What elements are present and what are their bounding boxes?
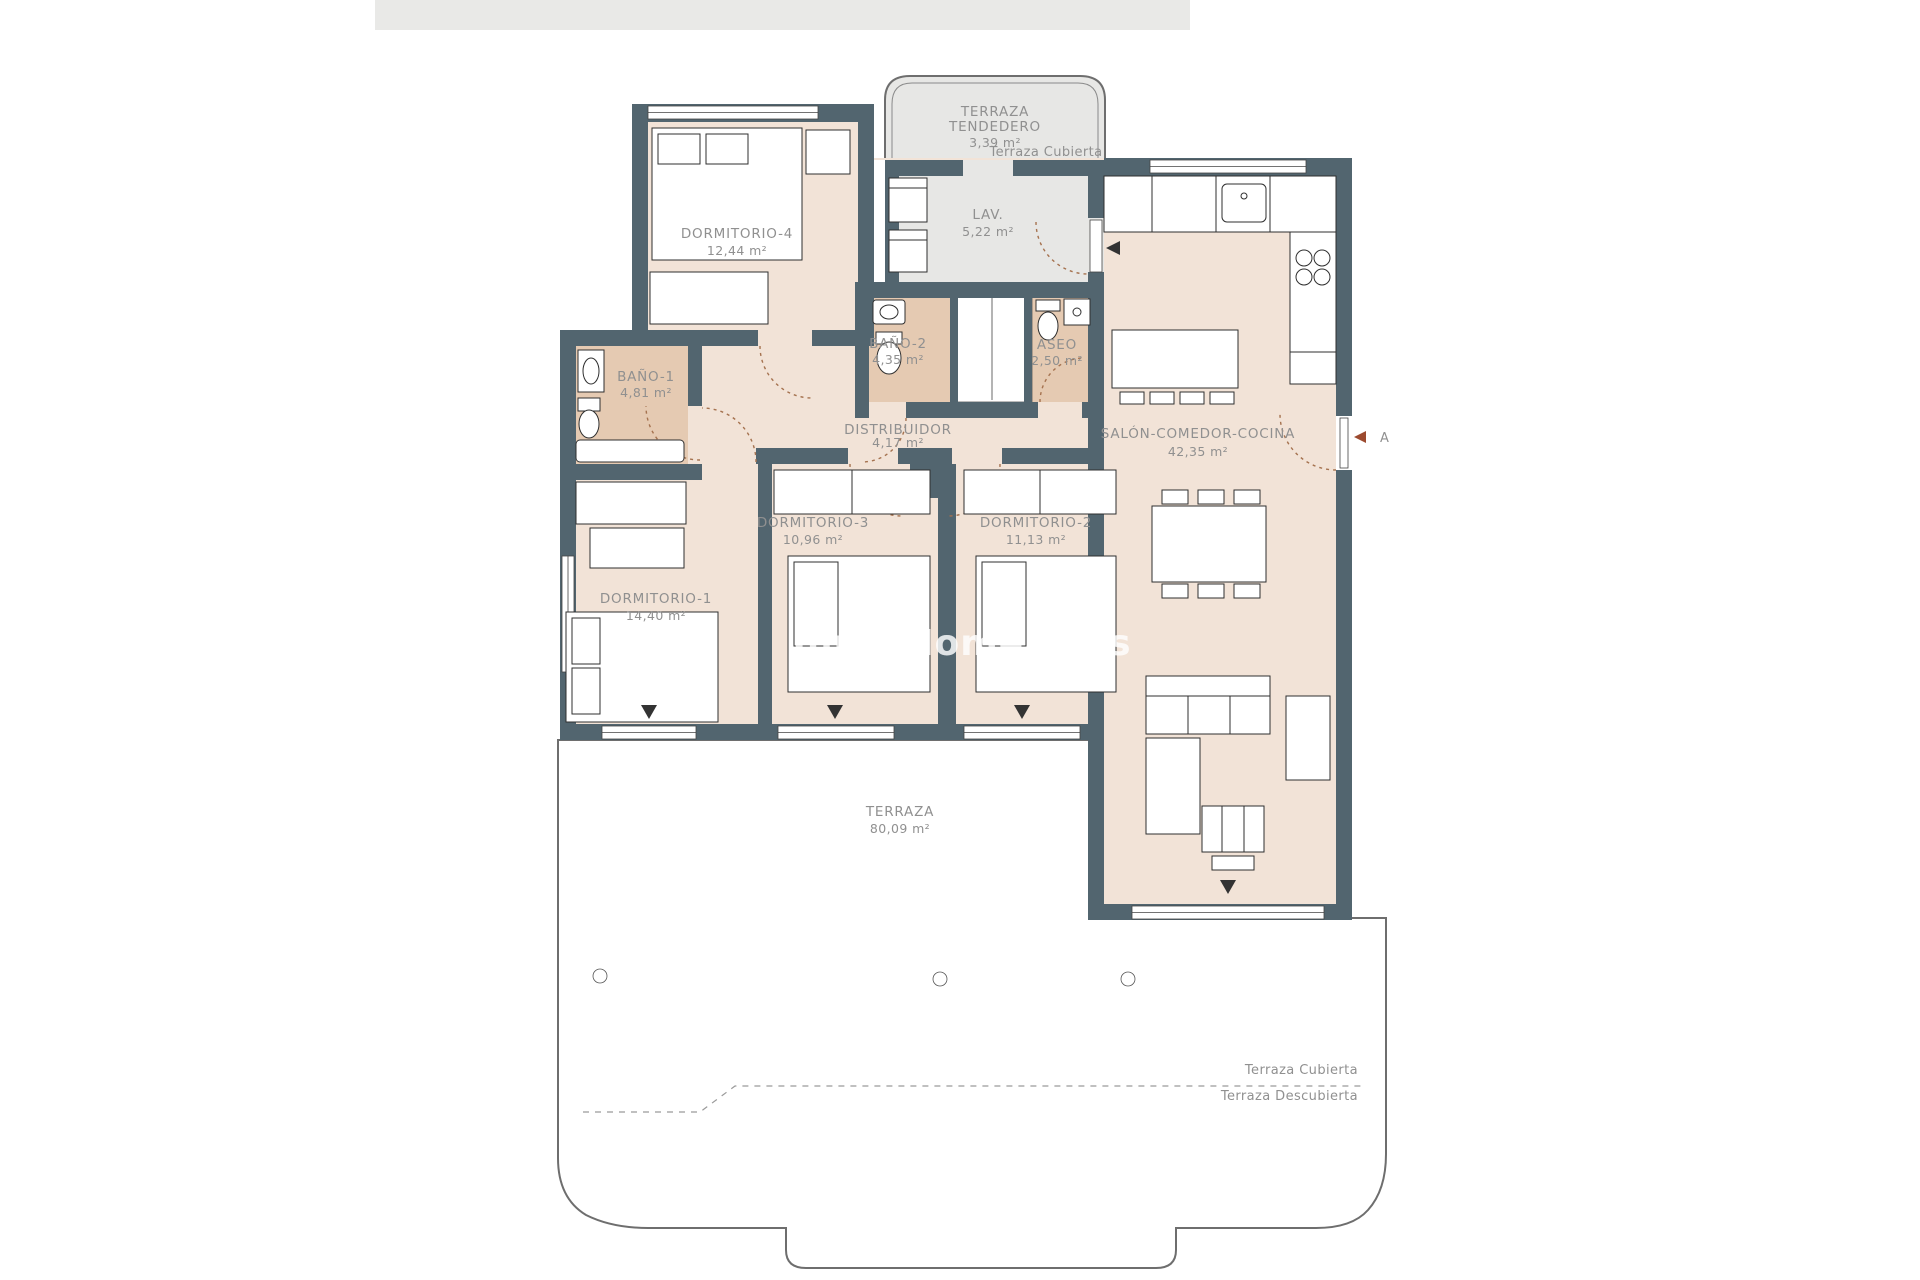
- label-lav: LAV.: [972, 207, 1003, 223]
- area-dormitorio-4: 12,44 m²: [707, 243, 767, 258]
- terrace-column: [593, 969, 607, 983]
- floor-plan-page: TERRAZA TENDEDERO 3,39 m² Terraza Cubier…: [0, 0, 1920, 1280]
- area-bano-2: 4,35 m²: [872, 352, 924, 367]
- oven-icon: [1290, 352, 1336, 384]
- label-salon: SALÓN-COMEDOR-COCINA: [1101, 424, 1295, 442]
- area-bano-1: 4,81 m²: [620, 385, 672, 400]
- dining-table-icon: [1152, 490, 1266, 598]
- kitchen-sink-icon: [1222, 184, 1266, 222]
- area-dormitorio-1: 14,40 m²: [626, 608, 686, 623]
- label-dormitorio-3: DORMITORIO-3: [757, 515, 869, 531]
- wardrobe-icon: [964, 470, 1116, 514]
- label-terraza-descubierta: Terraza Descubierta: [1220, 1089, 1358, 1104]
- label-terraza-cubierta-top: Terraza Cubierta: [988, 145, 1102, 160]
- wardrobe-icon: [590, 528, 684, 568]
- window: [778, 726, 894, 739]
- label-dormitorio-4: DORMITORIO-4: [681, 226, 793, 242]
- window: [1150, 160, 1306, 173]
- wardrobe-icon: [774, 470, 930, 514]
- entrance-marker-icon: [1354, 431, 1366, 443]
- watermark: InmoMoment.es: [792, 623, 1131, 664]
- dresser-icon: [650, 272, 768, 324]
- terrace-column: [933, 972, 947, 986]
- area-dormitorio-3: 10,96 m²: [783, 532, 843, 547]
- area-salon: 42,35 m²: [1168, 444, 1228, 459]
- wardrobe-icon: [576, 482, 686, 524]
- label-dormitorio-2: DORMITORIO-2: [980, 515, 1092, 531]
- area-dormitorio-2: 11,13 m²: [1006, 532, 1066, 547]
- sink-icon: [578, 350, 604, 392]
- washer-icon: [889, 178, 927, 222]
- window: [648, 106, 818, 119]
- area-aseo: 2,50 m²: [1031, 353, 1083, 368]
- toilet-icon: [1036, 300, 1060, 340]
- area-terraza: 80,09 m²: [870, 821, 930, 836]
- bathtub-icon: [576, 440, 684, 462]
- section-marker-a: A: [1380, 431, 1389, 446]
- toilet-icon: [578, 398, 600, 438]
- area-distribuidor: 4,17 m²: [872, 435, 924, 450]
- label-bano-2: BAÑO-2: [869, 335, 927, 352]
- label-terraza-tendedero: TERRAZA: [960, 104, 1029, 120]
- label-terraza: TERRAZA: [865, 804, 934, 820]
- armchair-icon: [1286, 696, 1330, 780]
- floor-plan-svg: TERRAZA TENDEDERO 3,39 m² Terraza Cubier…: [0, 0, 1920, 1280]
- label-terraza-tendedero2: TENDEDERO: [948, 119, 1041, 135]
- dryer-icon: [889, 230, 927, 272]
- area-lav: 5,22 m²: [962, 224, 1014, 239]
- sink-icon: [873, 300, 905, 324]
- nightstand-icon: [806, 130, 850, 174]
- label-dormitorio-1: DORMITORIO-1: [600, 591, 712, 607]
- laundry-door-opening: [1090, 220, 1102, 272]
- sink-icon: [1064, 299, 1090, 325]
- label-bano-1: BAÑO-1: [617, 368, 675, 385]
- kitchen-counter-icon: [1104, 176, 1336, 232]
- label-aseo: ASEO: [1037, 337, 1077, 353]
- label-terraza-cubierta-bottom: Terraza Cubierta: [1244, 1063, 1358, 1078]
- entrance-door-opening: [1336, 416, 1352, 470]
- window: [964, 726, 1080, 739]
- window: [602, 726, 696, 739]
- window: [1132, 906, 1324, 919]
- terrace-column: [1121, 972, 1135, 986]
